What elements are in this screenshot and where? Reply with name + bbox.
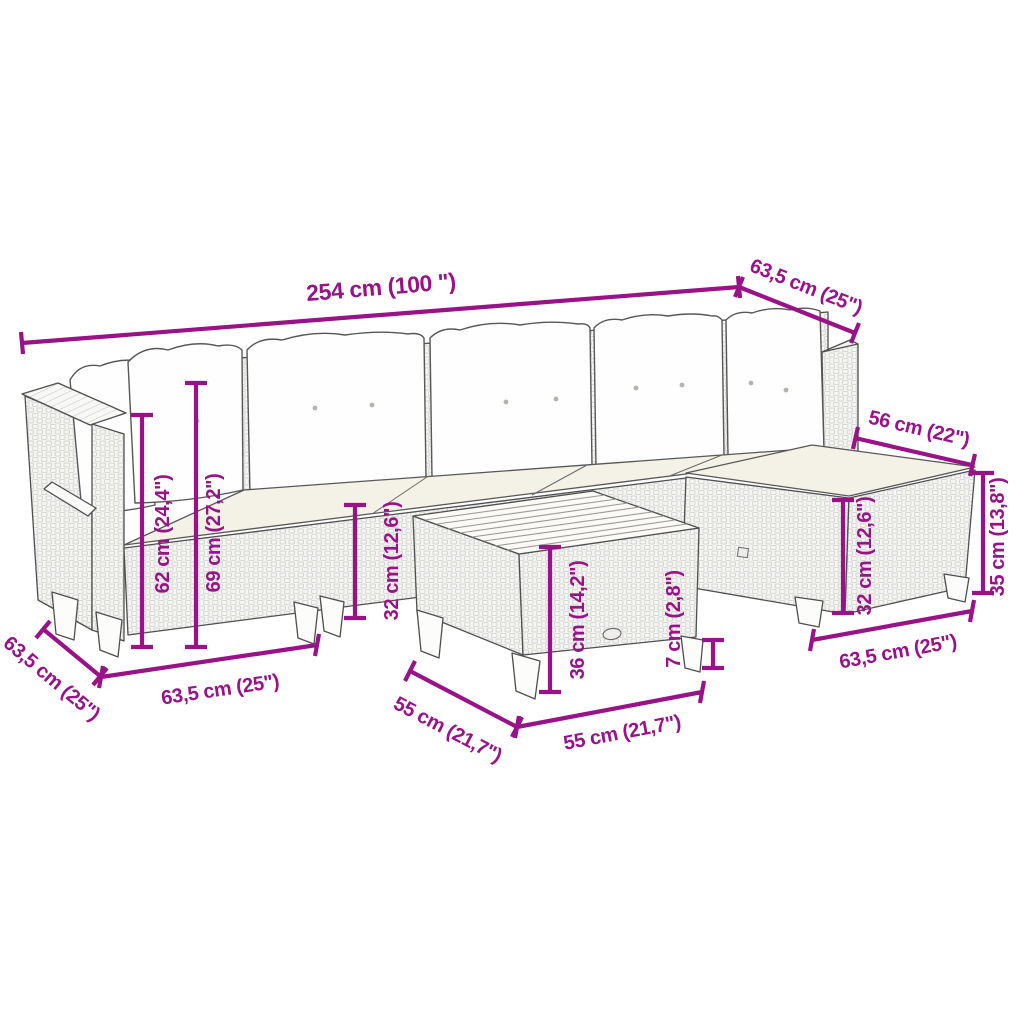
footstool-leg [795, 597, 823, 627]
back-cushion-1 [247, 332, 426, 494]
table-leg [512, 653, 540, 699]
dim-seat-height-label: 32 cm (12,6") [381, 502, 403, 621]
dim-stool-base-width-label: 63,5 cm (25") [838, 631, 959, 674]
back-cushion-4 [726, 308, 824, 456]
dim-total-width-label: 254 cm (100 ") [305, 268, 456, 306]
footstool-left-face [682, 477, 849, 614]
dim-table-width-label: 55 cm (21,7") [562, 711, 683, 755]
dim-table-height-label: 36 cm (14,2") [567, 561, 589, 680]
footstool [682, 445, 975, 627]
dim-armrest-height-label: 62 cm (24,4") [152, 475, 174, 594]
dim-table-depth: 55 cm (21,7") [390, 661, 522, 767]
dimension-diagram: 254 cm (100 ") 63,5 cm (25") 56 cm (22")… [0, 0, 1024, 1024]
dim-table-depth-label: 55 cm (21,7") [390, 693, 505, 768]
table [413, 491, 703, 699]
back-cushion-corner [128, 344, 243, 503]
dim-stool-seat-height-label: 32 cm (12,6") [854, 497, 876, 616]
sofa-leg [52, 592, 78, 640]
back-cushion-2 [430, 322, 592, 478]
dim-module-width-label: 63,5 cm (25") [160, 670, 281, 709]
sofa-leg [96, 612, 122, 657]
footstool-leg [944, 574, 969, 602]
dim-back-height-label: 69 cm (27,2") [203, 474, 225, 593]
sofa-leg [294, 602, 318, 644]
dim-stool-height: 35 cm (13,8") [972, 473, 1009, 596]
sofa-corner-post [92, 424, 124, 641]
dim-sofa-depth: 63,5 cm (25") [0, 621, 107, 725]
dim-sofa-depth-label: 63,5 cm (25") [0, 632, 104, 725]
table-leg [417, 610, 443, 658]
footstool-hole [737, 547, 748, 557]
dim-stool-height-label: 35 cm (13,8") [987, 478, 1009, 597]
diagram-canvas: 254 cm (100 ") 63,5 cm (25") 56 cm (22")… [0, 0, 1024, 1024]
back-cushion-3 [594, 314, 724, 467]
dim-table-clearance-label: 7 cm (2,8") [663, 570, 685, 667]
sofa-leg [320, 596, 344, 637]
